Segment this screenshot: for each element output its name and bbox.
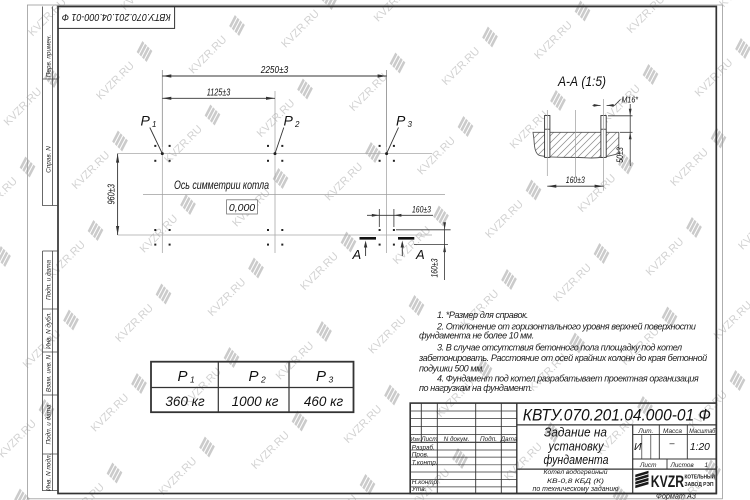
svg-text:Пров.: Пров. <box>412 452 429 459</box>
svg-text:Р: Р <box>178 368 188 385</box>
svg-text:1000 кг: 1000 кг <box>232 394 279 409</box>
svg-text:КВТУ.070.201.04.000-01 Ф: КВТУ.070.201.04.000-01 Ф <box>523 405 711 424</box>
svg-text:N докум.: N докум. <box>444 435 470 443</box>
svg-text:Р: Р <box>396 113 406 129</box>
svg-text:Формат А3: Формат А3 <box>656 492 696 500</box>
svg-text:960±3: 960±3 <box>107 184 118 205</box>
svg-text:Котел водогрейный: Котел водогрейный <box>544 469 609 476</box>
svg-text:Взам. инв. N: Взам. инв. N <box>46 355 53 393</box>
svg-text:Перв. примен.: Перв. примен. <box>46 35 53 77</box>
svg-text:Утв.: Утв. <box>411 486 427 493</box>
svg-text:3. В случае отсутствия бетонн: 3. В случае отсутствия бетонного пола пл… <box>437 343 682 353</box>
svg-text:А: А <box>352 247 362 262</box>
svg-text:забетонировать. Расстояние от: забетонировать. Расстояние от осей крайн… <box>418 353 707 363</box>
svg-text:Инв. N подл.: Инв. N подл. <box>45 454 53 491</box>
svg-text:фундамента: фундамента <box>544 452 609 467</box>
svg-text:Р: Р <box>249 368 259 385</box>
svg-text:КВТУ.070.201.04.000-01 Ф: КВТУ.070.201.04.000-01 Ф <box>62 11 171 22</box>
svg-text:Дата: Дата <box>500 436 518 443</box>
svg-text:160±3: 160±3 <box>430 258 441 278</box>
svg-text:2: 2 <box>260 375 266 385</box>
svg-text:50±3: 50±3 <box>615 147 626 163</box>
svg-text:0,000: 0,000 <box>229 202 255 214</box>
svg-text:Подп. и дата: Подп. и дата <box>45 260 53 300</box>
svg-text:KVZR: KVZR <box>651 473 685 491</box>
svg-text:160±3: 160±3 <box>412 204 432 215</box>
svg-text:160±3: 160±3 <box>566 175 586 186</box>
svg-text:М16*: М16* <box>622 95 639 105</box>
svg-text:Подп.: Подп. <box>480 435 497 443</box>
svg-text:1: 1 <box>190 375 195 385</box>
svg-text:3: 3 <box>329 375 334 385</box>
svg-text:Лит.: Лит. <box>637 428 653 435</box>
svg-text:Лист: Лист <box>639 462 657 469</box>
svg-text:Задание на: Задание на <box>544 424 607 439</box>
svg-text:1125±3: 1125±3 <box>207 87 231 98</box>
svg-text:Листов: Листов <box>670 462 695 469</box>
svg-text:А: А <box>415 247 425 262</box>
svg-text:по нагрузкам на фундамент.: по нагрузкам на фундамент. <box>419 383 532 393</box>
svg-text:КВ-0,8 КБД (К): КВ-0,8 КБД (К) <box>547 478 604 485</box>
svg-text:2: 2 <box>294 120 300 129</box>
svg-text:фундамента не более 10 мм.: фундамента не более 10 мм. <box>419 331 534 341</box>
svg-text:3: 3 <box>408 120 413 129</box>
svg-text:Инв. N дубл.: Инв. N дубл. <box>45 312 53 349</box>
svg-text:Р: Р <box>316 368 326 385</box>
svg-text:Т.контр.: Т.контр. <box>412 460 438 467</box>
svg-text:подушки 500 мм.: подушки 500 мм. <box>419 363 484 373</box>
svg-text:1:20: 1:20 <box>690 441 710 453</box>
svg-text:И: И <box>634 441 642 453</box>
svg-text:Разраб.: Разраб. <box>412 443 435 451</box>
svg-text:А-А (1:5): А-А (1:5) <box>557 73 606 89</box>
svg-text:Ось симметрии котла: Ось симметрии котла <box>174 178 269 192</box>
svg-text:Подп. и дата: Подп. и дата <box>45 404 53 444</box>
svg-text:360 кг: 360 кг <box>165 394 205 409</box>
svg-text:ЗАВОД РЭП: ЗАВОД РЭП <box>685 482 714 488</box>
svg-text:Справ. N: Справ. N <box>46 146 53 173</box>
svg-text:1. *Размер для справок.: 1. *Размер для справок. <box>437 310 528 320</box>
svg-text:КОТЕЛЬНЫЙ: КОТЕЛЬНЫЙ <box>685 473 716 481</box>
svg-text:Р: Р <box>141 113 151 129</box>
svg-text:Масштаб: Масштаб <box>689 427 715 435</box>
svg-text:по техническому заданию: по техническому заданию <box>533 485 620 493</box>
svg-text:Масса: Масса <box>663 428 682 435</box>
svg-text:Р: Р <box>284 113 294 129</box>
svg-text:Изм.: Изм. <box>411 437 421 443</box>
svg-text:–: – <box>668 438 675 448</box>
svg-text:Н.контр.: Н.контр. <box>412 479 439 486</box>
svg-text:1: 1 <box>152 120 156 129</box>
svg-text:Лист: Лист <box>420 436 438 443</box>
svg-text:2250±3: 2250±3 <box>260 65 289 76</box>
svg-text:460 кг: 460 кг <box>304 394 344 409</box>
svg-text:1: 1 <box>705 462 709 469</box>
